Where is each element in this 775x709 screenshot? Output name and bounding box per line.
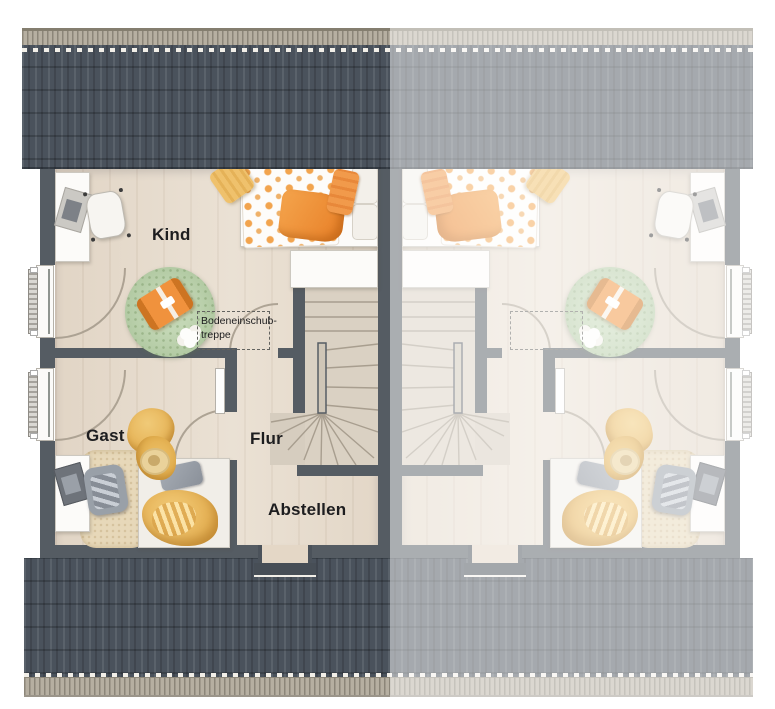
- unit-right: [390, 160, 752, 580]
- radiator: [28, 269, 38, 334]
- radiator: [28, 372, 38, 437]
- stairwell-floor: [305, 288, 378, 465]
- wall-gast-flur-upper: [543, 348, 555, 412]
- door-leaf: [215, 368, 225, 414]
- stairwell-floor: [402, 288, 475, 465]
- room-label-gast: Gast: [86, 426, 125, 446]
- roof-top: [22, 28, 753, 167]
- wall-party: [390, 165, 402, 545]
- window: [726, 265, 744, 338]
- door-swing-arc-gast: [553, 410, 605, 462]
- straw-hat: [610, 448, 640, 475]
- window: [36, 368, 54, 441]
- attic-hatch-label: Bodeneinschub- treppe: [201, 314, 277, 342]
- stair-newel-wall: [454, 343, 462, 413]
- straw-hat: [140, 448, 170, 475]
- radiator: [742, 372, 752, 437]
- roof-snow-guard: [22, 48, 753, 52]
- stair-newel-wall: [318, 343, 326, 413]
- plush-toy: [588, 328, 600, 340]
- wall-stairwell-bottom: [402, 465, 483, 476]
- dormer-frame: [254, 563, 316, 577]
- wall-stairwell-bottom: [297, 465, 378, 476]
- window-swing-arc: [655, 370, 725, 440]
- door-swing-arc-gast: [175, 410, 227, 462]
- radiator: [742, 269, 752, 334]
- attic-hatch-outline: [510, 311, 583, 350]
- wall-exterior-left: [725, 441, 740, 545]
- roof-eave-trim: [24, 677, 753, 697]
- roof-tiles: [22, 45, 753, 169]
- cabinet: [290, 250, 378, 288]
- floor-plan-canvas: Kind Gast Flur Abstellen Bodeneinschub- …: [0, 0, 775, 709]
- pillow: [352, 204, 378, 240]
- armchair: [650, 463, 697, 517]
- wall-stub: [485, 348, 502, 358]
- wall-exterior-left: [725, 165, 740, 265]
- room-label-flur: Flur: [250, 429, 283, 449]
- wall-exterior-left: [40, 165, 55, 265]
- wall-party: [378, 165, 390, 545]
- wall-exterior-left: [40, 441, 55, 545]
- room-label-abstellen: Abstellen: [268, 500, 346, 520]
- window: [726, 368, 744, 441]
- room-label-kind: Kind: [152, 225, 191, 245]
- window-swing-arc: [55, 268, 125, 338]
- cabinet: [402, 250, 490, 288]
- wall-stairwell-left: [475, 288, 487, 413]
- wall-gast-flur-upper: [225, 348, 237, 412]
- plush-toy: [180, 328, 192, 340]
- door-leaf: [555, 368, 565, 414]
- window-swing-arc: [655, 268, 725, 338]
- armchair: [82, 463, 129, 517]
- window: [36, 265, 54, 338]
- wall-stairwell-left: [293, 288, 305, 413]
- pillow: [402, 204, 428, 240]
- dormer-frame: [464, 563, 526, 577]
